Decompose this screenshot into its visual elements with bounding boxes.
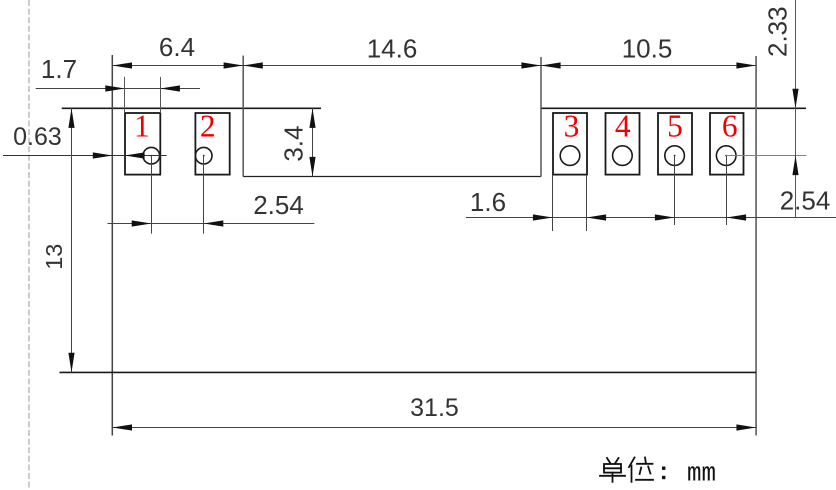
- svg-text:mm: mm: [687, 460, 716, 490]
- svg-text:4: 4: [615, 108, 631, 143]
- svg-text:13: 13: [41, 244, 67, 270]
- svg-text:3: 3: [564, 108, 580, 143]
- svg-text:1: 1: [134, 108, 150, 143]
- svg-text:2.33: 2.33: [763, 6, 793, 57]
- svg-text:31.5: 31.5: [410, 394, 459, 422]
- svg-text:0.63: 0.63: [13, 123, 62, 151]
- svg-text:6: 6: [722, 108, 738, 143]
- svg-text:5: 5: [667, 108, 683, 143]
- svg-text:3.4: 3.4: [279, 126, 309, 162]
- svg-text:10.5: 10.5: [622, 34, 673, 64]
- svg-text:6.4: 6.4: [159, 32, 195, 62]
- svg-text:1.7: 1.7: [41, 54, 77, 84]
- svg-text:2: 2: [200, 108, 216, 143]
- svg-text:2.54: 2.54: [253, 190, 304, 220]
- svg-text:14.6: 14.6: [367, 34, 418, 64]
- svg-text:2.54: 2.54: [780, 186, 831, 216]
- svg-text:1.6: 1.6: [470, 187, 506, 217]
